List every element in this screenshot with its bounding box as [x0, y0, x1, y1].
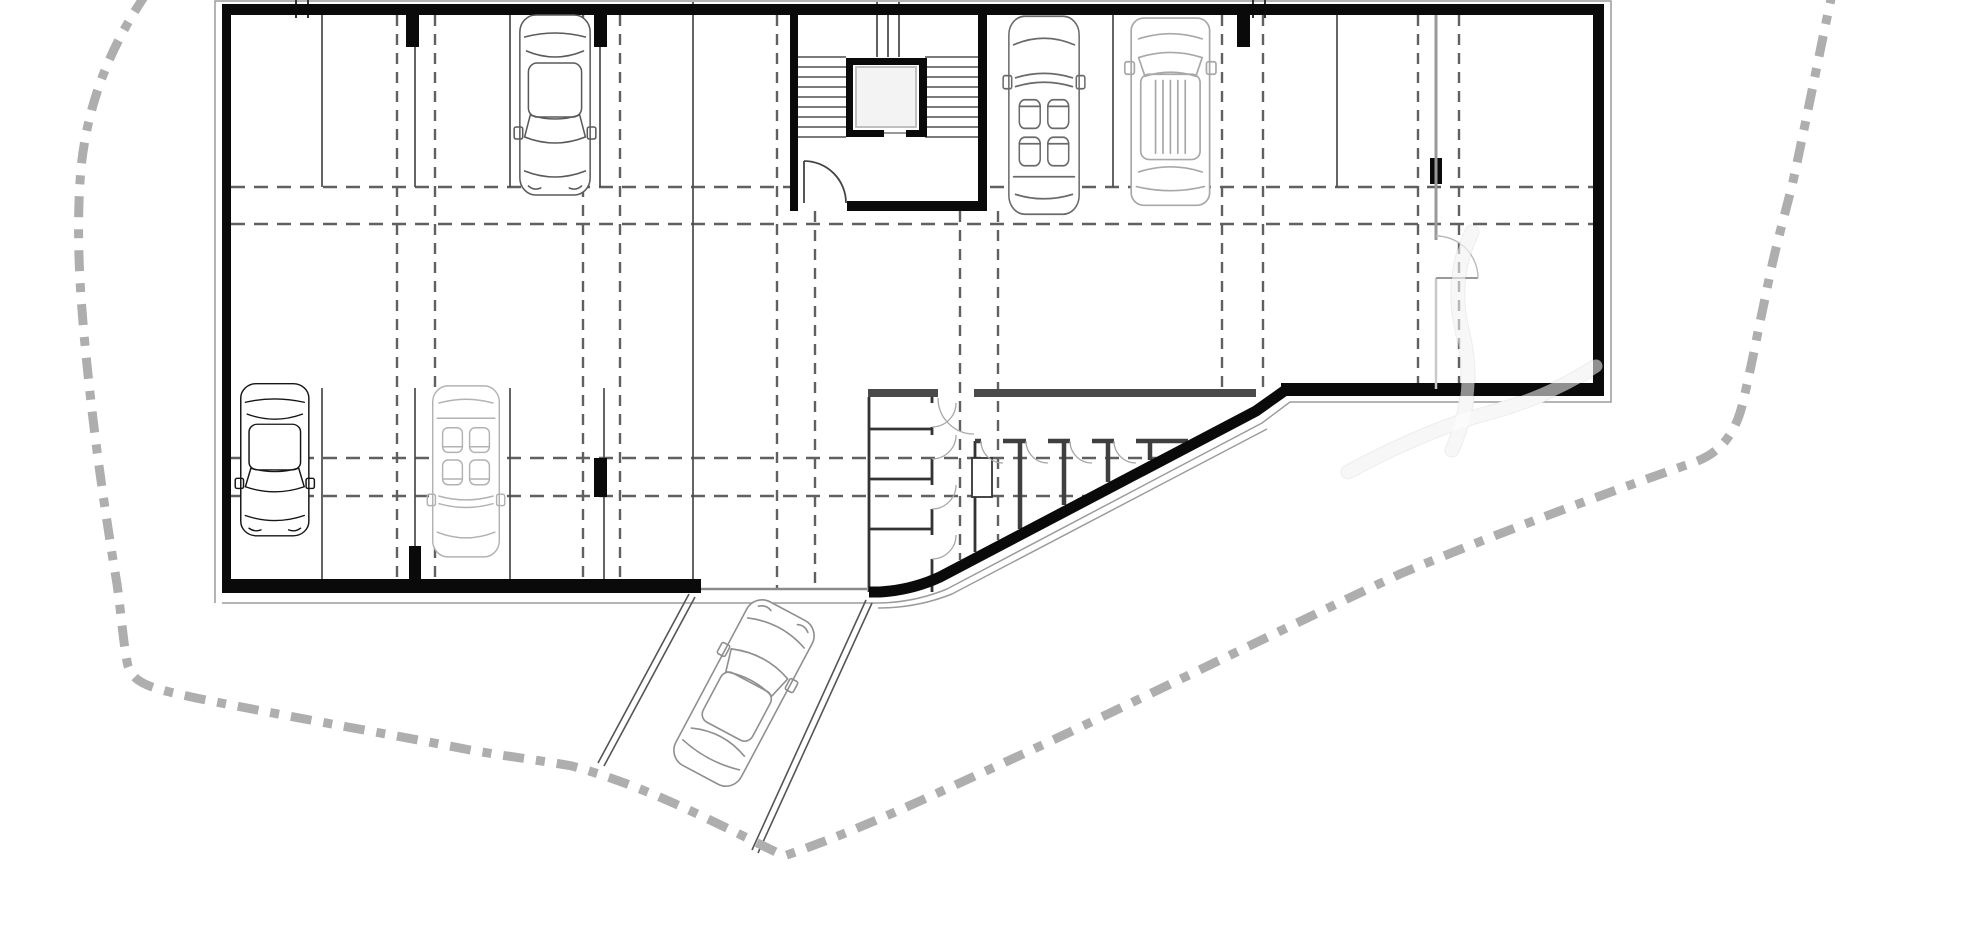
car-icon — [235, 384, 314, 536]
cars — [235, 15, 1216, 795]
storage-locker-walls — [975, 441, 1188, 529]
door-swing-arcs — [932, 398, 1136, 559]
storage-front-wall — [868, 389, 1256, 397]
car-icon — [1003, 16, 1085, 214]
car-icon — [1125, 18, 1216, 205]
car-icon — [514, 15, 596, 195]
floor-plan-drawing — [0, 0, 1973, 931]
car-icon — [427, 386, 504, 557]
car-icon — [663, 591, 826, 795]
watermark-over — [1348, 232, 1596, 472]
floor-plan-page — [0, 0, 1973, 931]
storage-duct — [972, 458, 992, 497]
elevator-cab — [856, 67, 916, 127]
